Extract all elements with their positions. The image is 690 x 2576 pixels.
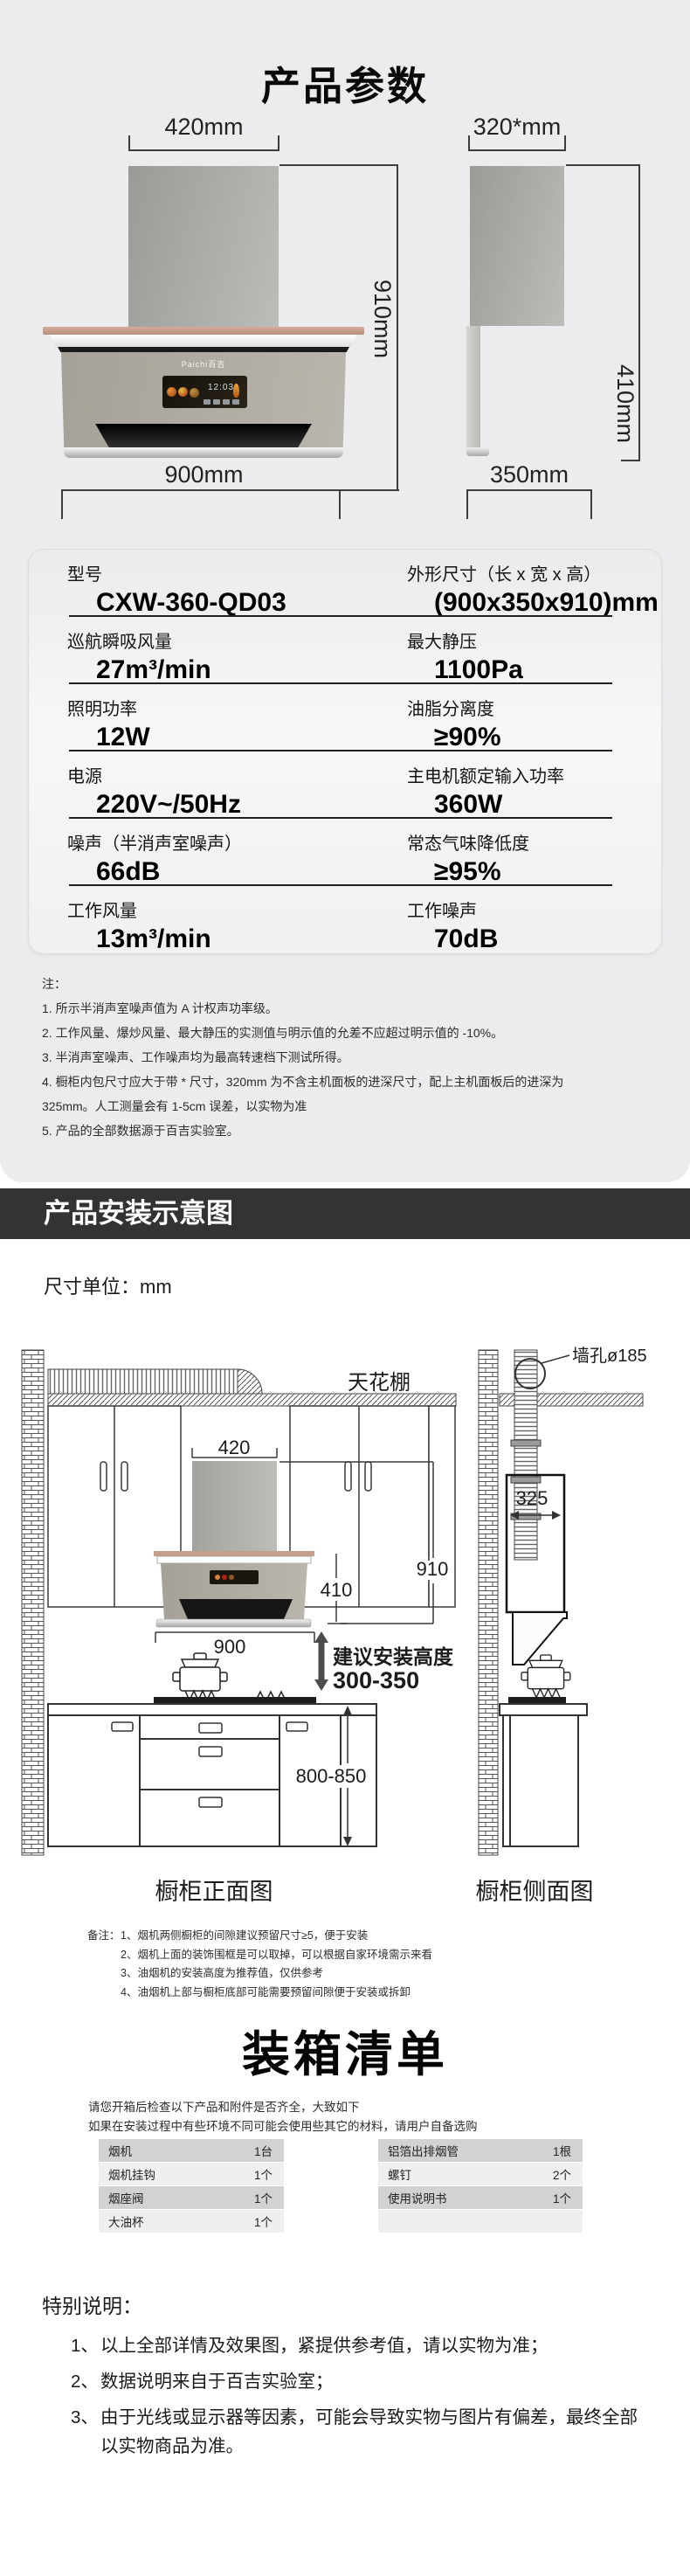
table-row bbox=[378, 2210, 583, 2233]
cooking-pot-icon bbox=[173, 1653, 227, 1700]
item-name: 烟座阀 bbox=[108, 2189, 144, 2206]
hood-chimney-side bbox=[470, 166, 564, 326]
item-number: 2、 bbox=[71, 2367, 100, 2396]
remark-line: 1、烟机两侧橱柜的间隙建议预留尺寸≥5，便于安装 bbox=[121, 1927, 432, 1946]
table-row: 烟机挂钩 1个 bbox=[99, 2163, 284, 2185]
dim-label-900: 900 bbox=[214, 1636, 246, 1658]
install-diagram-svg: 天花棚 420 bbox=[0, 1311, 690, 1922]
hood-smoke-inlet bbox=[91, 424, 316, 447]
dim-label-420: 420 bbox=[218, 1437, 251, 1458]
spec-label: 噪声（半消声室噪声） bbox=[67, 829, 407, 855]
install-remarks: 备注： 1、烟机两侧橱柜的间隙建议预留尺寸≥5，便于安装 2、烟机上面的装饰围框… bbox=[87, 1927, 690, 2002]
item-qty: 1个 bbox=[254, 2212, 273, 2230]
duct-clamp bbox=[511, 1440, 541, 1446]
hood-copper-trim bbox=[43, 327, 364, 335]
remark-line: 3、油烟机的安装高度为推荐值，仅供参考 bbox=[121, 1964, 432, 1984]
item-qty: 1根 bbox=[553, 2142, 571, 2159]
item-name: 铝箔出排烟管 bbox=[388, 2142, 459, 2159]
item-qty: 1个 bbox=[553, 2189, 571, 2206]
dim-label-410mm: 410mm bbox=[612, 351, 638, 456]
dim-label-800-850: 800-850 bbox=[296, 1765, 367, 1787]
brand-logo: Paichi百吉 bbox=[59, 358, 348, 370]
install-height-title: 建议安装高度 bbox=[333, 1645, 454, 1668]
table-row: 大油杯 1个 bbox=[99, 2210, 284, 2233]
spec-row: 噪声（半消声室噪声） 66dB 常态气味降低度 ≥95% bbox=[29, 819, 661, 886]
spec-table: 型号 CXW-360-QD03 外形尺寸（长 x 宽 x 高） (900x350… bbox=[28, 549, 662, 954]
brick-wall-side bbox=[479, 1350, 498, 1855]
display-button-icon bbox=[213, 399, 220, 405]
item-text: 数据说明来自于百吉实验室； bbox=[100, 2367, 638, 2396]
packing-intro-line: 请您开箱后检查以下产品和附件是否齐全，大致如下 bbox=[88, 2098, 690, 2117]
hood-led-light-strip bbox=[50, 335, 357, 347]
item-name: 大油杯 bbox=[108, 2212, 144, 2230]
spec-value: ≥95% bbox=[407, 857, 661, 887]
item-number: 3、 bbox=[71, 2403, 100, 2461]
dim-line-910 bbox=[397, 164, 398, 491]
install-section-banner: 产品安装示意图 bbox=[0, 1188, 690, 1239]
spec-label: 工作噪声 bbox=[407, 897, 661, 922]
item-qty: 1台 bbox=[254, 2142, 273, 2159]
spec-row: 电源 220V~/50Hz 主电机额定输入功率 360W bbox=[29, 751, 661, 819]
spec-value: 1100Pa bbox=[407, 655, 661, 685]
dim-line-320 bbox=[468, 135, 566, 151]
display-flame-icon bbox=[233, 384, 239, 398]
spec-label: 照明功率 bbox=[67, 695, 407, 720]
display-food-icon bbox=[178, 387, 188, 397]
table-row: 铝箔出排烟管 1根 bbox=[378, 2139, 583, 2162]
display-clock: 12:03 bbox=[208, 383, 234, 392]
page-title: 产品参数 bbox=[0, 54, 690, 111]
spec-value: CXW-360-QD03 bbox=[67, 588, 407, 618]
table-row: 使用说明书 1个 bbox=[378, 2186, 583, 2209]
packing-intro: 请您开箱后检查以下产品和附件是否齐全，大致如下 如果在安装过程中有些环境不同可能… bbox=[88, 2098, 690, 2136]
dim-label-350mm: 350mm bbox=[466, 461, 592, 488]
dim-line-420 bbox=[128, 135, 279, 151]
display-food-icon bbox=[190, 388, 199, 398]
spec-value: (900x350x910)mm bbox=[407, 588, 661, 618]
duct-elbow bbox=[238, 1369, 262, 1394]
hood-control-display: 12:03 bbox=[162, 376, 247, 408]
exhaust-duct-horizontal bbox=[48, 1369, 238, 1394]
section-product-params: 产品参数 420mm 910mm Paichi百吉 bbox=[0, 0, 690, 1182]
spec-label: 工作风量 bbox=[67, 897, 407, 922]
item-name: 螺钉 bbox=[388, 2165, 411, 2183]
unit-label: 尺寸单位：mm bbox=[44, 1271, 690, 1294]
spec-label: 常态气味降低度 bbox=[407, 829, 661, 855]
wall-hole-leader bbox=[542, 1355, 569, 1363]
item-text: 以上全部详情及效果图，紧提供参考值，请以实物为准； bbox=[100, 2331, 638, 2360]
note-line: 2. 工作风量、爆炒风量、最大静压的实测值与明示值的允差不应超过明示值的 -10… bbox=[42, 1021, 615, 1045]
ceiling-slab-front bbox=[48, 1394, 456, 1406]
dim-tick-910-bottom bbox=[340, 489, 399, 491]
item-name: 烟机挂钩 bbox=[108, 2165, 155, 2183]
display-button-icon bbox=[223, 399, 230, 405]
cooking-pot-icon bbox=[521, 1655, 570, 1698]
duct-clamp bbox=[511, 1477, 541, 1483]
item-qty: 1个 bbox=[254, 2165, 273, 2183]
dim-line-350 bbox=[466, 489, 592, 519]
display-food-icon bbox=[167, 387, 176, 397]
display-button-icon bbox=[204, 399, 210, 405]
spec-value: 220V~/50Hz bbox=[67, 790, 407, 820]
remark-line: 4、油烟机上部与橱柜底部可能需要预留间隙便于安装或拆卸 bbox=[121, 1984, 432, 2003]
cooktop-panel-side bbox=[508, 1697, 566, 1703]
special-note-item: 2、 数据说明来自于百吉实验室； bbox=[71, 2367, 638, 2396]
install-height-arrow bbox=[314, 1631, 328, 1691]
spec-value: 27m³/min bbox=[67, 655, 407, 685]
cooktop-panel bbox=[154, 1697, 316, 1703]
spec-value: ≥90% bbox=[407, 723, 661, 752]
dim-line-410 bbox=[638, 164, 640, 461]
dim-line-900 bbox=[61, 489, 341, 519]
note-line: 1. 所示半消声室噪声值为 A 计权声功率级。 bbox=[42, 996, 615, 1021]
special-notes: 1、 以上全部详情及效果图，紧提供参考值，请以实物为准； 2、 数据说明来自于百… bbox=[71, 2331, 638, 2461]
remarks-title: 备注： bbox=[87, 1927, 121, 2002]
spec-row: 工作风量 13m³/min 工作噪声 70dB bbox=[29, 886, 661, 953]
spec-label: 主电机额定输入功率 bbox=[407, 762, 661, 787]
item-qty: 2个 bbox=[553, 2165, 571, 2183]
note-line: 3. 半消声室噪声、工作噪声均为最高转速档下测试所得。 bbox=[42, 1045, 615, 1070]
spec-value: 66dB bbox=[67, 857, 407, 887]
dim-label-910mm: 910mm bbox=[369, 267, 396, 371]
dim-label-325: 325 bbox=[516, 1487, 549, 1509]
spec-label: 最大静压 bbox=[407, 627, 661, 653]
special-note-item: 1、 以上全部详情及效果图，紧提供参考值，请以实物为准； bbox=[71, 2331, 638, 2360]
spec-row: 照明功率 12W 油脂分离度 ≥90% bbox=[29, 684, 661, 751]
spec-value: 360W bbox=[407, 790, 661, 820]
item-number: 1、 bbox=[71, 2331, 100, 2360]
hood-glass-edge bbox=[58, 347, 349, 352]
notes-title: 注： bbox=[42, 972, 615, 996]
hood-chimney-front bbox=[128, 166, 279, 327]
dim-label-900mm: 900mm bbox=[128, 461, 279, 488]
spec-value: 70dB bbox=[407, 924, 661, 954]
packing-intro-line: 如果在安装过程中有些环境不同可能会使用些其它的材料，请用户自备选购 bbox=[88, 2117, 690, 2136]
item-name: 使用说明书 bbox=[388, 2189, 447, 2206]
item-name: 烟机 bbox=[108, 2142, 132, 2159]
table-row: 烟座阀 1个 bbox=[99, 2186, 284, 2209]
packing-table-left: 烟机 1台 烟机挂钩 1个 烟座阀 1个 大油杯 1个 bbox=[99, 2139, 284, 2233]
special-notes-title: 特别说明： bbox=[42, 2289, 690, 2319]
hood-side-base bbox=[466, 447, 489, 456]
dim-tick-910-top bbox=[279, 164, 398, 166]
item-qty: 1个 bbox=[254, 2189, 273, 2206]
packing-list-title: 装箱清单 bbox=[0, 2028, 690, 2081]
hood-side-profile bbox=[466, 326, 480, 453]
wall-hole-label: 墙孔ø185 bbox=[572, 1346, 647, 1366]
table-row: 烟机 1台 bbox=[99, 2139, 284, 2162]
item-text: 由于光线或显示器等因素，可能会导致实物与图片有偏差，最终全部以实物商品为准。 bbox=[100, 2403, 638, 2461]
brick-wall-front bbox=[22, 1350, 44, 1855]
dim-tick-410-top bbox=[566, 164, 640, 166]
spec-value: 12W bbox=[67, 723, 407, 752]
note-line: 4. 橱柜内包尺寸应大于带 * 尺寸，320mm 为不含主机面板的进深尺寸，配上… bbox=[42, 1070, 615, 1118]
spec-label: 外形尺寸（长 x 宽 x 高） bbox=[407, 560, 661, 585]
install-height-range: 300-350 bbox=[333, 1667, 419, 1693]
spec-row: 型号 CXW-360-QD03 外形尺寸（长 x 宽 x 高） (900x350… bbox=[29, 550, 661, 617]
dim-label-410: 410 bbox=[321, 1579, 353, 1601]
spec-label: 电源 bbox=[67, 762, 407, 787]
spec-label: 型号 bbox=[67, 560, 407, 585]
install-hood bbox=[154, 1551, 314, 1627]
product-detail-page: 产品参数 420mm 910mm Paichi百吉 bbox=[0, 0, 690, 2576]
ceiling-label: 天花棚 bbox=[348, 1371, 411, 1395]
remark-line: 2、烟机上面的装饰围框是可以取掉，可以根据自家环境需示来看 bbox=[121, 1946, 432, 1965]
caption-front-view: 橱柜正面图 bbox=[155, 1879, 273, 1905]
dim-label-910: 910 bbox=[417, 1558, 449, 1580]
spec-label: 巡航瞬吸风量 bbox=[67, 627, 407, 653]
spec-row: 巡航瞬吸风量 27m³/min 最大静压 1100Pa bbox=[29, 617, 661, 684]
install-diagram: 天花棚 420 bbox=[0, 1311, 690, 1922]
notes-block: 注： 1. 所示半消声室噪声值为 A 计权声功率级。 2. 工作风量、爆炒风量、… bbox=[42, 972, 615, 1143]
caption-side-view: 橱柜侧面图 bbox=[476, 1879, 594, 1905]
install-hood-chimney bbox=[192, 1461, 277, 1553]
packing-table-right: 铝箔出排烟管 1根 螺钉 2个 使用说明书 1个 bbox=[378, 2139, 583, 2233]
table-row: 螺钉 2个 bbox=[378, 2163, 583, 2185]
special-note-item: 3、 由于光线或显示器等因素，可能会导致实物与图片有偏差，最终全部以实物商品为准… bbox=[71, 2403, 638, 2461]
spec-label: 油脂分离度 bbox=[407, 695, 661, 720]
spec-value: 13m³/min bbox=[67, 924, 407, 954]
note-line: 5. 产品的全部数据源于百吉实验室。 bbox=[42, 1118, 615, 1143]
packing-tables: 烟机 1台 烟机挂钩 1个 烟座阀 1个 大油杯 1个 铝箔出排烟管 1根 螺钉 bbox=[0, 2139, 690, 2237]
base-cabinet-side bbox=[500, 1704, 587, 1846]
dim-tick-410-bottom bbox=[621, 460, 640, 461]
display-button-icon bbox=[232, 399, 239, 405]
hood-base-bar bbox=[64, 447, 343, 458]
